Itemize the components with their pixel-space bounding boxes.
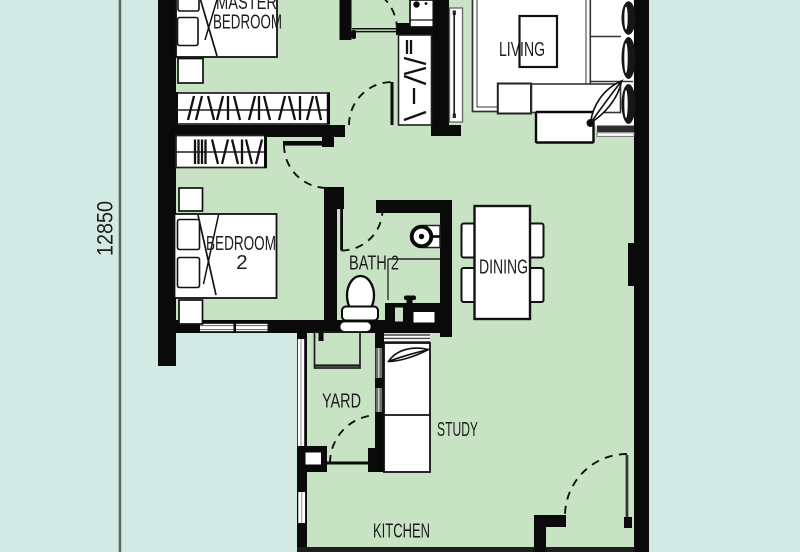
svg-text:BATH 2: BATH 2 — [349, 252, 399, 275]
svg-text:BEDROOM: BEDROOM — [213, 11, 282, 34]
svg-text:12850: 12850 — [93, 201, 118, 256]
svg-text:LIVING: LIVING — [499, 38, 545, 61]
svg-text:DINING: DINING — [479, 256, 528, 279]
svg-text:YARD: YARD — [322, 390, 361, 413]
svg-text:KITCHEN: KITCHEN — [373, 520, 430, 543]
svg-text:2: 2 — [236, 251, 247, 274]
svg-text:STUDY: STUDY — [437, 418, 478, 441]
